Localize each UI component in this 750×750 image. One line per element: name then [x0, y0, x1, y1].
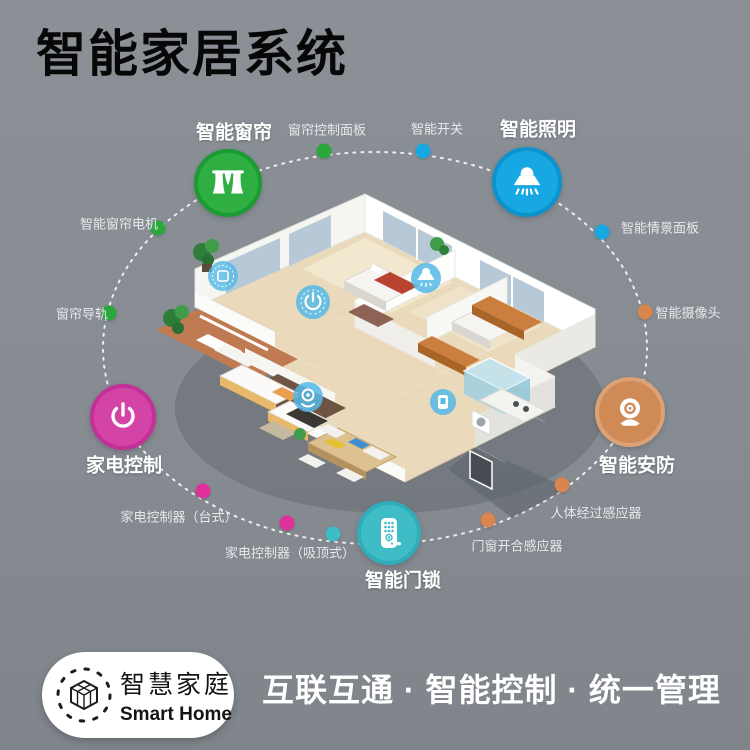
- label-smart-switch: 智能开关: [411, 119, 463, 138]
- label-door-sensor: 门窗开合感应器: [471, 536, 562, 555]
- node-dot-camera: [638, 305, 653, 320]
- label-curtain-motor: 智能窗帘电机: [80, 214, 158, 233]
- brand-name-en: Smart Home: [120, 704, 232, 726]
- hub-label-smart-lighting: 智能照明: [500, 115, 576, 142]
- label-motion-sensor: 人体经过感应器: [550, 503, 641, 522]
- label-camera: 智能摄像头: [655, 303, 720, 322]
- node-dot-motion-sensor: [555, 478, 570, 493]
- curtain-marker: [208, 261, 238, 291]
- hub-appliance-control: [90, 384, 156, 450]
- hub-label-smart-security: 智能安防: [599, 451, 675, 478]
- power-icon: [105, 399, 141, 435]
- hub-smart-security: [595, 377, 665, 447]
- hub-smart-lighting: [492, 147, 562, 217]
- brand-name-cn: 智慧家庭: [120, 665, 232, 701]
- hub-label-smart-door-lock: 智能门锁: [365, 566, 441, 593]
- webcam-icon: [611, 393, 649, 431]
- hub-smart-door-lock: [357, 501, 421, 565]
- door-lock-icon: [371, 515, 407, 551]
- brand-logo: 智慧家庭 Smart Home: [42, 652, 234, 738]
- node-dot-curtain-panel: [317, 144, 332, 159]
- node-dot-lock-connector: [326, 527, 341, 542]
- slogan-text: 互联互通 · 智能控制 · 统一管理: [262, 665, 721, 711]
- lamp-marker: [411, 263, 441, 293]
- ceiling-lamp-icon: [508, 163, 546, 201]
- smart-home-logo-icon: [52, 663, 116, 727]
- label-ceiling-ctrl: 家电控制器（吸顶式）: [225, 543, 355, 562]
- power-marker: [296, 285, 330, 319]
- label-scene-panel: 智能情景面板: [621, 218, 699, 237]
- node-dot-ceiling-ctrl: [280, 516, 295, 531]
- curtain-icon: [209, 164, 247, 202]
- speaker-marker: [293, 382, 323, 412]
- node-dot-desktop-ctrl: [196, 484, 211, 499]
- node-dot-door-sensor: [481, 513, 496, 528]
- node-dot-smart-switch: [416, 144, 431, 159]
- page-title: 智能家居系统: [36, 14, 348, 86]
- label-desktop-ctrl: 家电控制器（台式）: [120, 507, 237, 526]
- panel-marker: [430, 389, 456, 415]
- hub-label-smart-curtain: 智能窗帘: [196, 118, 272, 145]
- label-curtain-rail: 窗帘导轨: [56, 304, 108, 323]
- hub-smart-curtain: [194, 149, 262, 217]
- hub-label-appliance-control: 家电控制: [86, 451, 162, 478]
- label-curtain-panel: 窗帘控制面板: [288, 120, 366, 139]
- node-dot-scene-panel: [595, 225, 610, 240]
